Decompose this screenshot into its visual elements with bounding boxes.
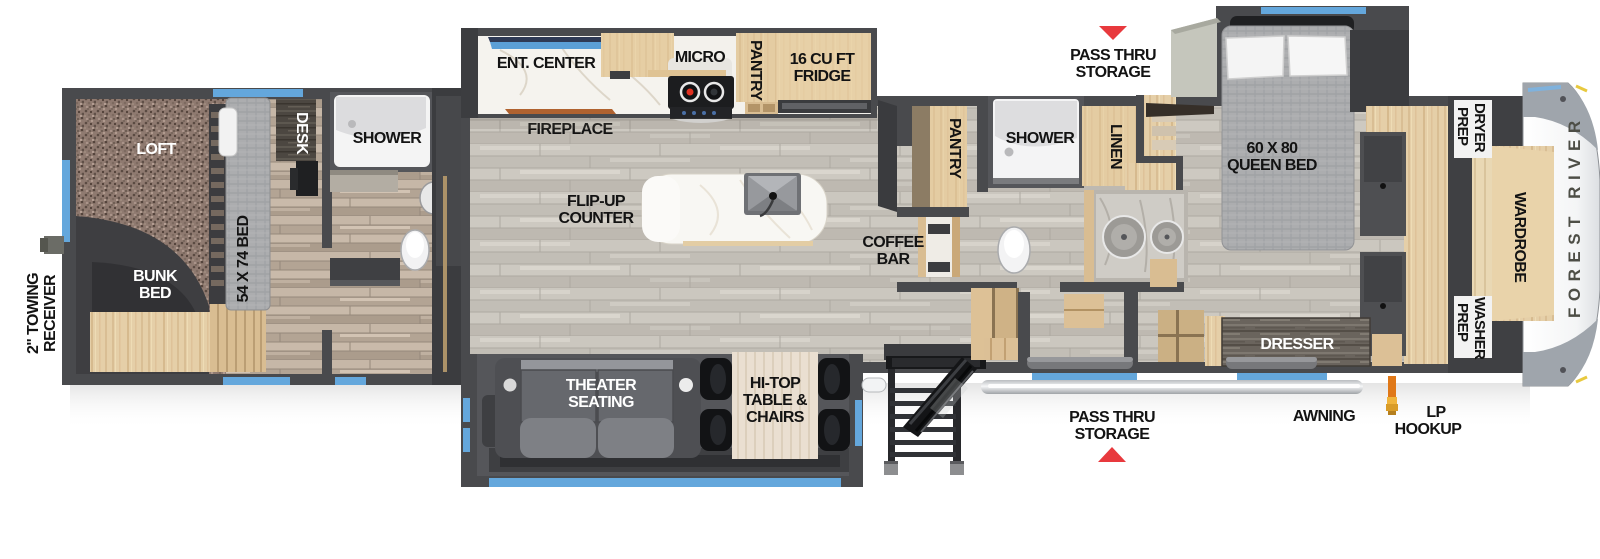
svg-text:THEATER: THEATER (566, 377, 637, 394)
svg-text:SHOWER: SHOWER (1006, 130, 1075, 147)
svg-text:16 CU FT: 16 CU FT (790, 51, 855, 68)
svg-text:FOREST RIVER: FOREST RIVER (1565, 114, 1584, 318)
svg-text:PREP: PREP (1454, 303, 1471, 342)
svg-text:LOFT: LOFT (136, 141, 176, 158)
svg-text:DRYER: DRYER (1471, 103, 1488, 153)
svg-text:COUNTER: COUNTER (559, 210, 635, 227)
svg-text:PASS THRU: PASS THRU (1070, 47, 1156, 64)
svg-text:FRIDGE: FRIDGE (794, 68, 852, 85)
svg-text:BED: BED (139, 285, 171, 302)
svg-text:CHAIRS: CHAIRS (746, 409, 805, 426)
svg-text:FLIP-UP: FLIP-UP (567, 193, 626, 210)
svg-text:TABLE &: TABLE & (743, 392, 808, 409)
svg-text:60 X 80: 60 X 80 (1247, 140, 1299, 157)
svg-text:SEATING: SEATING (568, 394, 634, 411)
svg-text:STORAGE: STORAGE (1076, 64, 1152, 81)
svg-text:QUEEN BED: QUEEN BED (1227, 157, 1317, 174)
svg-text:DRESSER: DRESSER (1260, 336, 1334, 353)
svg-text:COFFEE: COFFEE (862, 234, 924, 251)
svg-text:PANTRY: PANTRY (747, 40, 764, 101)
svg-text:HI-TOP: HI-TOP (750, 375, 801, 392)
svg-text:WASHER: WASHER (1471, 297, 1488, 360)
svg-text:PASS THRU: PASS THRU (1069, 409, 1155, 426)
svg-text:HOOKUP: HOOKUP (1395, 421, 1463, 438)
svg-text:BAR: BAR (877, 251, 911, 268)
svg-text:WARDROBE: WARDROBE (1511, 192, 1528, 283)
svg-text:BUNK: BUNK (133, 268, 178, 285)
svg-text:LP: LP (1426, 404, 1446, 421)
svg-text:SHOWER: SHOWER (353, 130, 422, 147)
svg-text:AWNING: AWNING (1293, 408, 1355, 425)
svg-text:LINEN: LINEN (1107, 124, 1124, 169)
svg-text:ENT. CENTER: ENT. CENTER (497, 55, 596, 72)
svg-text:PANTRY: PANTRY (946, 118, 963, 179)
svg-text:2" TOWING: 2" TOWING (25, 273, 42, 354)
svg-text:STORAGE: STORAGE (1075, 426, 1151, 443)
svg-text:MICRO: MICRO (675, 49, 725, 66)
svg-text:PREP: PREP (1454, 107, 1471, 146)
svg-text:DESK: DESK (293, 112, 310, 155)
svg-text:RECEIVER: RECEIVER (42, 274, 59, 352)
svg-text:54 X 74 BED: 54 X 74 BED (235, 216, 252, 303)
